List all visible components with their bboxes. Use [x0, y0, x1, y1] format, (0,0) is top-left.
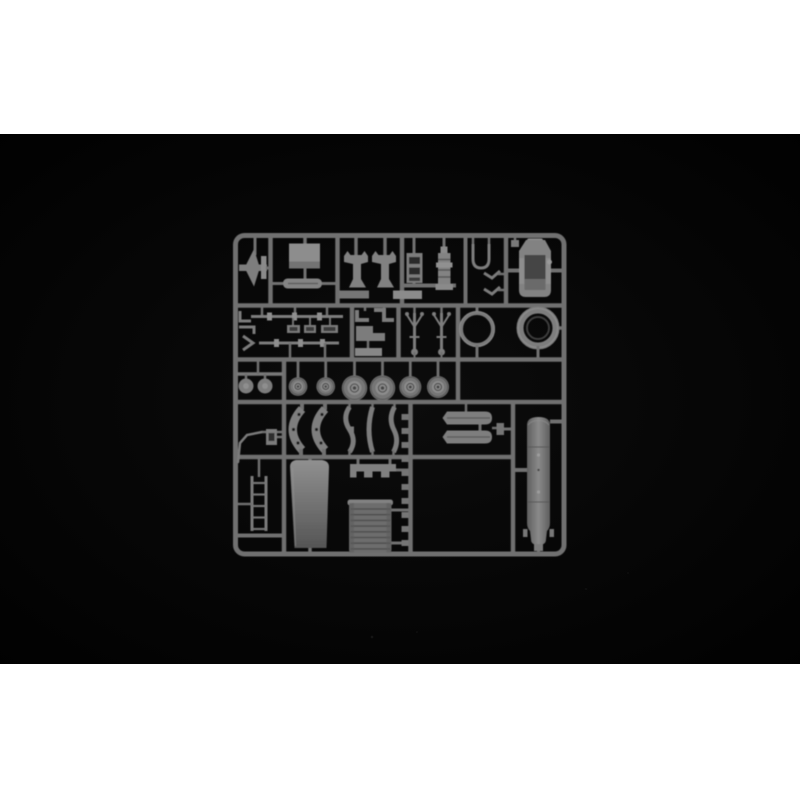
part-wheel-4-axle-hole: [381, 386, 385, 390]
part-louver-body: [349, 503, 392, 553]
part-gear-leg-1-pin-left: [405, 312, 409, 316]
part-tank-half: [527, 417, 550, 545]
part-door-2-hole-3: [319, 441, 322, 444]
part-rod-b-collar-1: [274, 339, 279, 347]
part-tank-fin-right: [550, 529, 555, 537]
part-wheel-6-axle-hole: [436, 385, 439, 388]
part-door-1-hole-1: [297, 413, 300, 416]
runner-clips: [402, 484, 409, 490]
part-frame-channel-slot-2: [409, 268, 420, 275]
part-link-slot-1: [290, 327, 298, 331]
part-pod-link-block: [497, 423, 505, 435]
part-wheel-5-axle-hole: [409, 385, 412, 388]
runner-clips: [402, 456, 409, 462]
dust-speck: [627, 572, 629, 574]
part-seat-pan: [525, 279, 546, 290]
part-axle-disc-2-hub: [262, 383, 268, 389]
runner-clips: [402, 442, 409, 448]
part-gear-leg-1-pin-right: [420, 312, 424, 316]
part-louver-shade-left: [349, 503, 354, 553]
part-bay-sill-bar: [339, 291, 369, 299]
part-axle-disc-1-hub: [243, 383, 249, 389]
part-door-strip-1-tab: [349, 427, 354, 433]
part-door-1-hole-3: [296, 441, 299, 444]
part-rod-a-collar-1: [267, 313, 272, 321]
part-pump-base: [436, 284, 454, 290]
part-gear-leg-2-pin-left: [432, 312, 436, 316]
part-shelf-plate: [355, 348, 382, 356]
part-hatch-plate-shade: [289, 262, 320, 269]
part-tank-tail-nub: [534, 544, 543, 551]
photo-background: [0, 134, 800, 664]
part-frame-channel-slot-3: [409, 278, 420, 282]
part-door-1-hole-2: [292, 428, 295, 431]
dust-speck: [371, 636, 373, 638]
part-wheel-2-axle-hole: [324, 385, 327, 388]
part-rod-a-collar-3: [317, 313, 322, 321]
part-wheel-3-axle-hole: [353, 386, 357, 390]
part-seat-tab: [511, 240, 519, 247]
part-gear-leg-2-pin-right: [447, 312, 451, 316]
part-bay-floor-plate: [393, 291, 422, 300]
part-control-vane-tail: [261, 256, 267, 279]
part-pump-knob: [441, 247, 448, 254]
runner-clips: [402, 414, 409, 420]
product-page: [0, 0, 800, 800]
part-wheel-1-axle-hole: [297, 385, 300, 388]
dust-speck: [416, 631, 418, 633]
dust-speck: [585, 588, 587, 590]
part-frame-channel-slot-1: [409, 257, 420, 264]
part-clip-notch: [269, 433, 275, 441]
part-pump-body: [438, 253, 451, 285]
part-door-2-hole-2: [315, 428, 318, 431]
runner-clips: [402, 428, 409, 434]
runner-clips: [402, 470, 409, 476]
runner-clips: [402, 498, 409, 504]
part-door-2-hole-1: [320, 413, 323, 416]
part-seat-knob: [547, 260, 552, 265]
part-seat-side-left: [519, 258, 524, 284]
part-blade: [290, 460, 329, 548]
part-link-slot-2: [306, 327, 314, 331]
runner-clips: [402, 526, 409, 532]
part-tank-nub-1: [537, 453, 540, 456]
part-tank-port: [537, 469, 539, 471]
part-tank-nub-2: [537, 490, 540, 493]
part-louver-shade-right: [387, 503, 392, 553]
part-tank-fin-left: [523, 529, 528, 537]
part-pump-collar: [436, 263, 453, 268]
runner-clips: [402, 540, 409, 546]
part-link-slot-3: [324, 327, 336, 331]
part-rod-b-collar-2: [298, 339, 303, 347]
product-photo: [0, 0, 800, 800]
runner-clips: [402, 512, 409, 518]
